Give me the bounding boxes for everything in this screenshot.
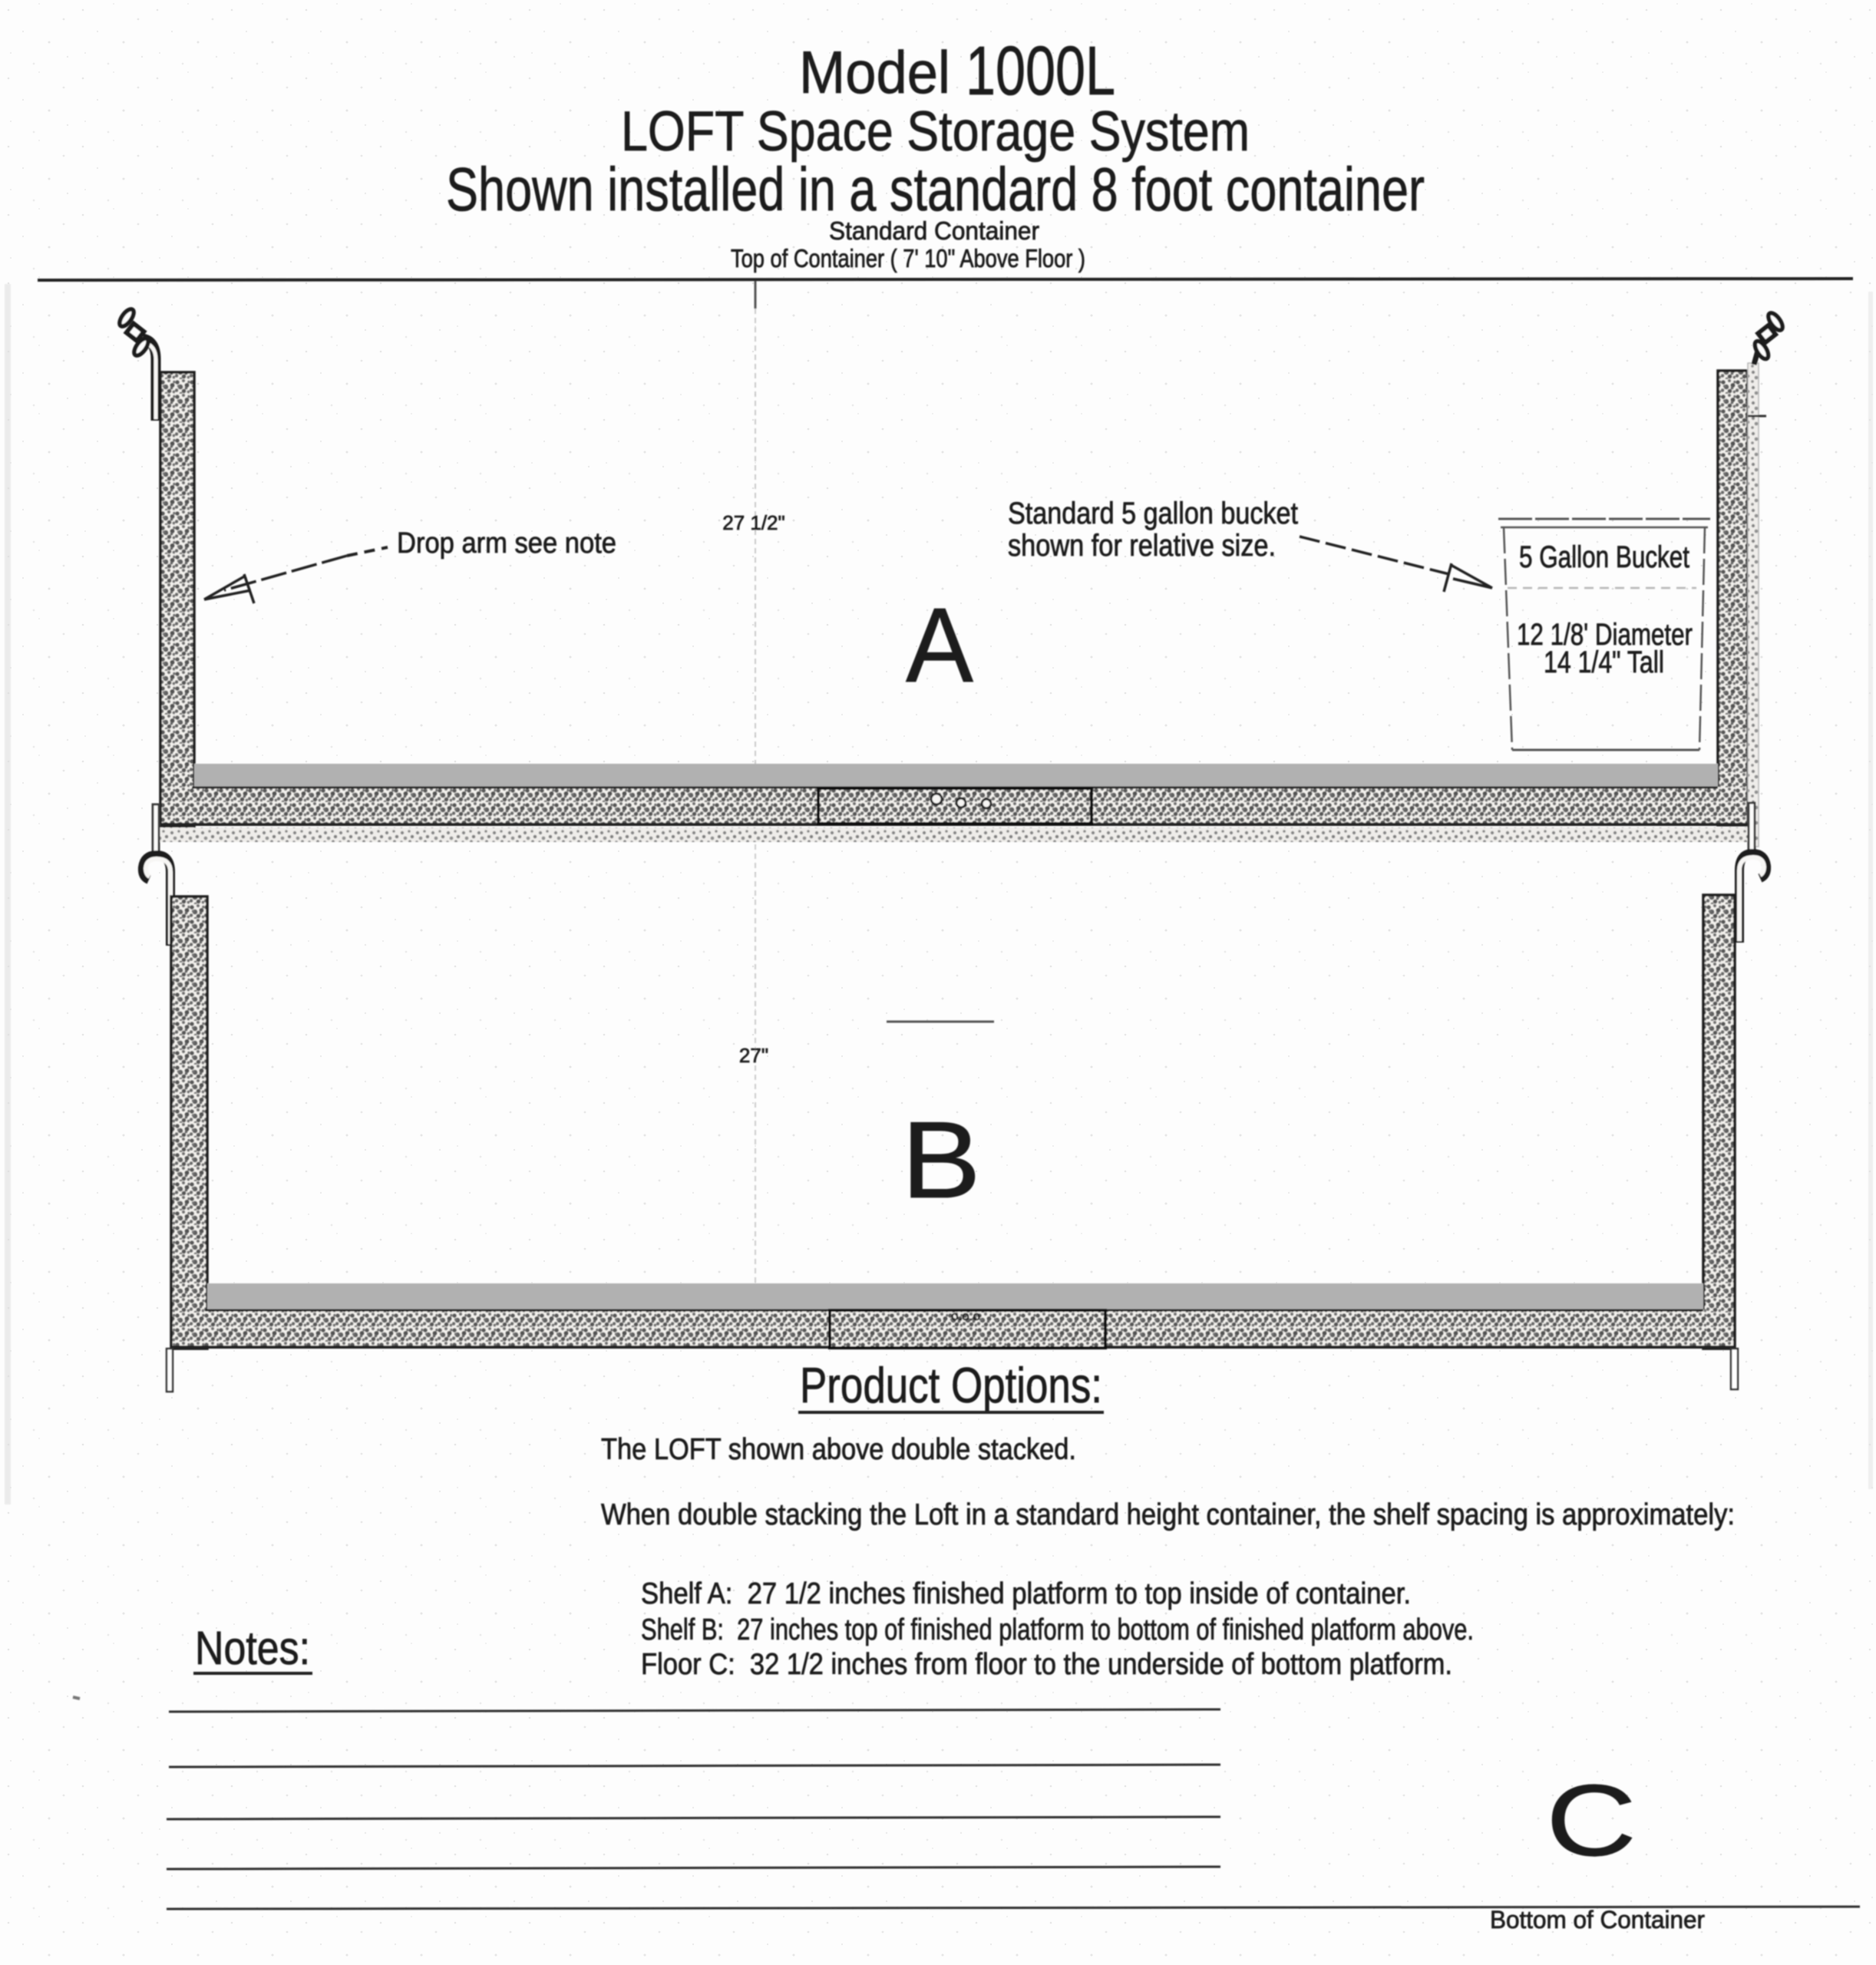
svg-text:B: B [901, 1099, 981, 1221]
svg-text:27": 27" [739, 1044, 768, 1067]
svg-text:Model: Model [799, 38, 950, 106]
svg-text:shown for relative size.: shown for relative size. [1008, 529, 1276, 563]
svg-text:14 1/4" Tall: 14 1/4" Tall [1544, 646, 1664, 679]
svg-text:o.o.o: o.o.o [951, 1309, 980, 1323]
svg-text:A: A [906, 586, 973, 705]
svg-text:When double stacking the Loft: When double stacking the Loft in a stand… [601, 1498, 1735, 1531]
svg-text:Product Options:: Product Options: [800, 1357, 1102, 1413]
svg-text:C: C [1546, 1764, 1637, 1877]
svg-text:Drop arm see note: Drop arm see note [397, 527, 616, 560]
svg-text:Floor C: 32 1/2 inches from f: Floor C: 32 1/2 inches from floor to the… [641, 1648, 1452, 1681]
svg-text:Shelf B: 27 inches top of fin: Shelf B: 27 inches top of finished platf… [641, 1613, 1474, 1646]
svg-text:Shown installed in a standard: Shown installed in a standard 8 foot con… [446, 155, 1425, 223]
svg-text:The LOFT shown above double st: The LOFT shown above double stacked. [601, 1433, 1076, 1466]
svg-text:5 Gallon Bucket: 5 Gallon Bucket [1519, 540, 1689, 574]
svg-text:Notes:: Notes: [195, 1622, 310, 1674]
svg-text:27 1/2": 27 1/2" [722, 511, 785, 534]
svg-text:Bottom of Container: Bottom of Container [1490, 1906, 1705, 1934]
svg-text:1000L: 1000L [966, 33, 1115, 110]
svg-text:Standard Container: Standard Container [829, 216, 1039, 245]
svg-text:Standard 5 gallon bucket: Standard 5 gallon bucket [1008, 497, 1298, 530]
svg-text:Top of Container ( 7' 10" Abov: Top of Container ( 7' 10" Above Floor ) [731, 244, 1085, 272]
svg-text:Shelf A: 27 1/2 inches finish: Shelf A: 27 1/2 inches finished platform… [641, 1577, 1411, 1610]
svg-text:LOFT Space Storage System: LOFT Space Storage System [621, 101, 1250, 163]
